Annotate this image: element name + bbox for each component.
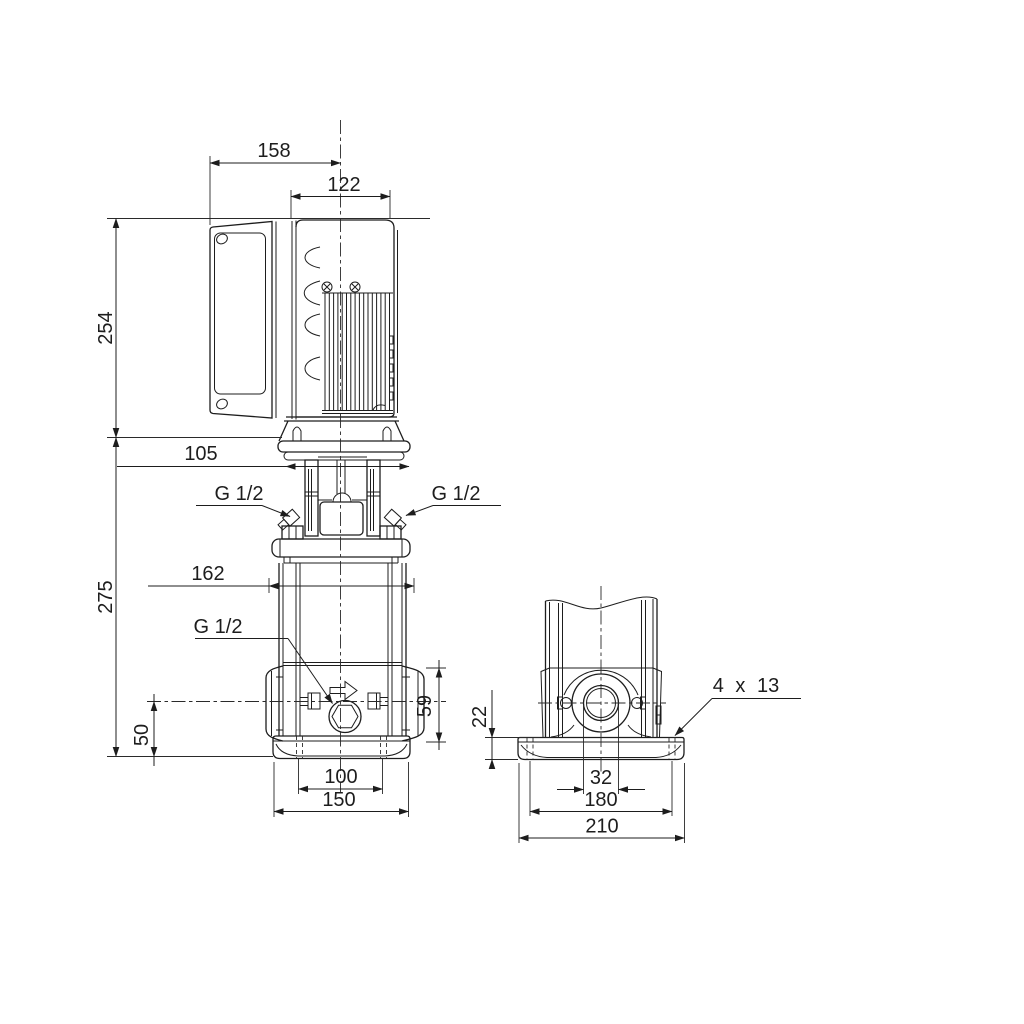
coupling-dome [333,493,351,502]
dim-label-210: 210 [585,816,618,838]
side-plug-right [368,693,388,709]
motor-fins [322,293,393,414]
drawing-canvas: 158 122 254 105 275 162 [0,0,1024,1024]
dim-label-32: 32 [590,767,612,789]
mounting-tabs [293,427,391,441]
drain-plug [329,701,361,733]
label-gauge-port-left: G 1/2 [196,483,290,517]
dim-head-offset-105: 105 [117,443,409,467]
dim-label-122: 122 [327,174,360,196]
dimensional-drawing: 158 122 254 105 275 162 [0,0,1024,1024]
plug-nuts [282,526,401,539]
flow-direction-arrow [330,682,357,700]
dim-label-50: 50 [131,724,153,746]
pump-sleeve [279,563,406,736]
motor-bottom-plate [284,417,399,421]
motor-control-box [210,221,296,420]
dim-base-to-port-50: 50 [131,694,160,766]
label-drain-port: G 1/2 [194,616,333,704]
dim-label-22: 22 [469,706,491,728]
dim-label-150: 150 [322,789,355,811]
pump-head-flange [272,539,410,563]
port-flange-left [266,666,283,741]
dimensions: 158 122 254 105 275 162 [95,140,801,843]
bolt-slots-front [297,736,387,759]
dim-port-height-59: 59 [414,660,446,750]
dim-head-width-162: 162 [148,563,414,593]
port-label-right: G 1/2 [432,483,481,505]
vent-plug-right [384,509,407,531]
base-plate-front [273,736,410,759]
dim-overall-width-158: 158 [210,140,341,225]
heatsink-clips [304,247,320,380]
label-gauge-port-right: G 1/2 [406,483,501,516]
cover-screws [322,282,360,292]
coupling-box [320,502,363,535]
mounting-hole-bottom [215,397,229,410]
dim-label-180: 180 [584,789,617,811]
label-base-holes-4x13: 4 x 13 [675,675,801,736]
dim-base-height-22: 22 [469,690,540,768]
dim-label-162: 162 [191,563,224,585]
side-plug-left [300,693,320,709]
shaft [318,457,367,500]
dim-label-275: 275 [95,580,117,613]
dim-label-100: 100 [324,766,357,788]
converter-housing [284,220,399,421]
dim-label-105: 105 [184,443,217,465]
coupling-guard [305,457,380,536]
port-label-left: G 1/2 [215,483,264,505]
base-holes-label: 4 x 13 [713,675,779,697]
dim-label-158: 158 [257,140,290,162]
drain-label: G 1/2 [194,616,243,638]
motor-adapter [278,421,410,460]
dim-label-59: 59 [414,695,436,717]
dim-label-254: 254 [95,311,117,344]
